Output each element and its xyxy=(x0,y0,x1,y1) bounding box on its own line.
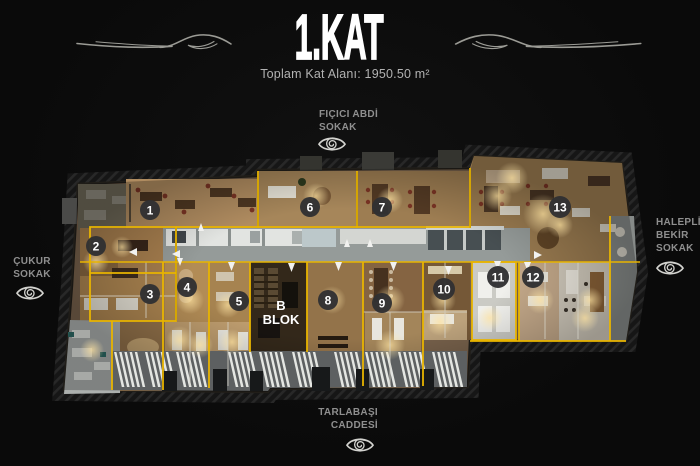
svg-text:B: B xyxy=(276,298,285,313)
svg-text:3: 3 xyxy=(147,288,154,302)
svg-text:1: 1 xyxy=(147,204,154,218)
svg-text:5: 5 xyxy=(236,295,243,309)
svg-text:12: 12 xyxy=(526,271,540,285)
svg-text:6: 6 xyxy=(307,201,314,215)
svg-text:10: 10 xyxy=(437,283,451,297)
svg-text:9: 9 xyxy=(379,297,386,311)
svg-text:BLOK: BLOK xyxy=(263,312,300,327)
svg-text:2: 2 xyxy=(93,240,100,254)
svg-text:8: 8 xyxy=(325,294,332,308)
svg-text:4: 4 xyxy=(184,281,191,295)
svg-text:13: 13 xyxy=(553,201,567,215)
svg-text:11: 11 xyxy=(492,271,505,285)
svg-text:7: 7 xyxy=(379,201,386,215)
